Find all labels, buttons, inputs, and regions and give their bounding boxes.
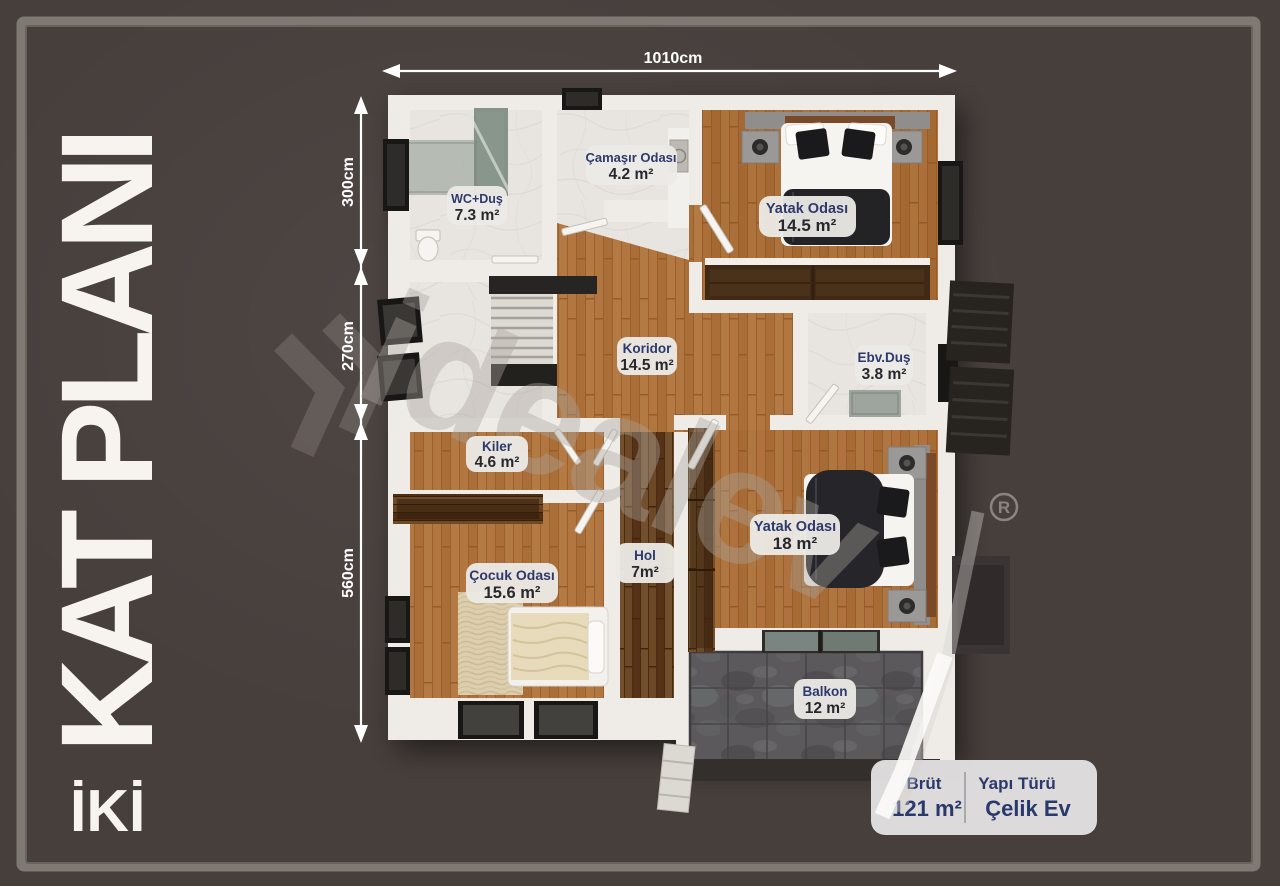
svg-text:270cm: 270cm	[340, 321, 357, 371]
svg-text:18 m²: 18 m²	[773, 534, 818, 553]
svg-text:Çelik Ev: Çelik Ev	[985, 796, 1071, 821]
svg-text:15.6 m²: 15.6 m²	[484, 584, 541, 602]
svg-text:7m²: 7m²	[631, 564, 659, 581]
svg-text:3.8 m²: 3.8 m²	[862, 366, 907, 383]
svg-text:Ebv.Duş: Ebv.Duş	[857, 350, 910, 365]
svg-text:Yapı Türü: Yapı Türü	[978, 774, 1055, 793]
svg-text:4.2 m²: 4.2 m²	[609, 166, 654, 183]
svg-text:Çocuk Odası: Çocuk Odası	[469, 567, 555, 583]
svg-text:7.3 m²: 7.3 m²	[455, 207, 500, 224]
svg-text:560cm: 560cm	[340, 548, 357, 598]
svg-text:14.5 m²: 14.5 m²	[778, 216, 837, 235]
svg-text:Kiler: Kiler	[482, 439, 513, 454]
svg-text:WC+Duş: WC+Duş	[451, 192, 503, 206]
svg-text:300cm: 300cm	[340, 157, 357, 207]
svg-text:Yatak Odası: Yatak Odası	[754, 519, 836, 535]
svg-text:Balkon: Balkon	[802, 684, 847, 699]
svg-text:İKİ: İKİ	[70, 778, 145, 844]
svg-text:12 m²: 12 m²	[805, 700, 846, 717]
svg-text:Hol: Hol	[634, 548, 656, 563]
svg-text:14.5 m²: 14.5 m²	[620, 357, 673, 374]
svg-text:Koridor: Koridor	[623, 341, 672, 356]
svg-text:Yatak Odası: Yatak Odası	[766, 201, 848, 217]
svg-text:R: R	[998, 498, 1010, 517]
svg-text:4.6 m²: 4.6 m²	[475, 454, 520, 471]
svg-text:Çamaşır Odası: Çamaşır Odası	[585, 150, 676, 165]
svg-text:KAT PLANI: KAT PLANI	[33, 135, 180, 753]
svg-text:1010cm: 1010cm	[644, 50, 703, 67]
